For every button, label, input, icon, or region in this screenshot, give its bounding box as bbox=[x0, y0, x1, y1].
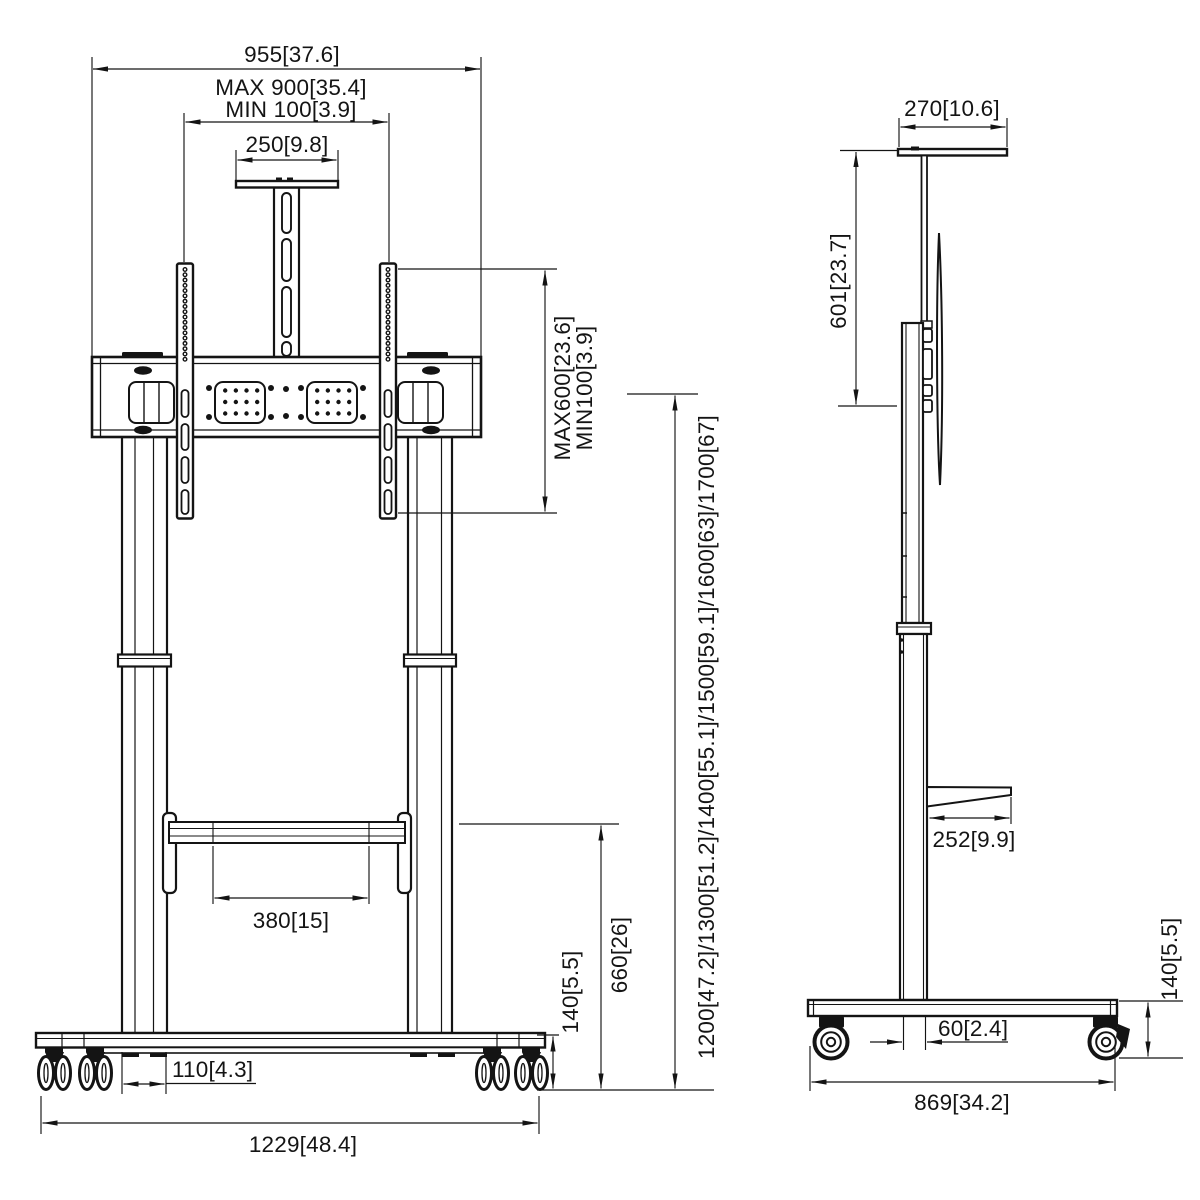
dim-caster-height-side: 140[5.5] bbox=[1157, 918, 1182, 1001]
dim-leg-width-at-base: 110[4.3] bbox=[172, 1057, 253, 1082]
casters-front bbox=[39, 1052, 548, 1090]
mount-hooks bbox=[923, 329, 932, 412]
base-front bbox=[36, 1033, 545, 1057]
inner-column-tube bbox=[922, 156, 928, 324]
top-shelf-side bbox=[898, 147, 1007, 156]
handle-left bbox=[129, 382, 174, 423]
dim-vesa-width-min: MIN 100[3.9] bbox=[225, 97, 356, 122]
display-panel-profile bbox=[937, 233, 942, 485]
vesa-rail-left bbox=[177, 264, 193, 519]
caster-wheel bbox=[516, 1052, 548, 1090]
dim-camera-shelf-width: 250[9.8] bbox=[246, 132, 329, 157]
dim-top-shelf-depth: 270[10.6] bbox=[904, 96, 1000, 121]
caster-wheel bbox=[80, 1052, 112, 1090]
shelf-side-profile bbox=[927, 787, 1011, 807]
dim-shelf-depth: 252[9.9] bbox=[933, 827, 1016, 852]
side-view-dimensions: 270[10.6] 601[23.7] 252[9.9] 60[2.4] 869… bbox=[810, 96, 1183, 1115]
bolt-plate-right bbox=[298, 382, 366, 423]
base-side bbox=[808, 1000, 1117, 1016]
technical-drawing-page: 955[37.6] MAX 900[35.4] MIN 100[3.9] 250… bbox=[0, 0, 1200, 1200]
bolt-plate-left bbox=[206, 382, 274, 423]
leg-right bbox=[404, 437, 456, 1033]
lift-column-side bbox=[897, 321, 932, 1000]
dim-column-depth: 60[2.4] bbox=[938, 1016, 1008, 1041]
equipment-shelf bbox=[163, 813, 411, 893]
caster-wheel bbox=[477, 1052, 509, 1090]
dim-shelf-height: 660[26] bbox=[607, 917, 632, 993]
dim-total-width: 955[37.6] bbox=[244, 42, 340, 67]
leg-left bbox=[118, 437, 171, 1033]
dim-caster-height-front: 140[5.5] bbox=[558, 951, 583, 1034]
dim-vesa-height-min: MIN100[3.9] bbox=[572, 326, 597, 451]
dim-base-width: 1229[48.4] bbox=[249, 1132, 357, 1157]
dim-base-depth: 869[34.2] bbox=[914, 1090, 1010, 1115]
dim-height-options: 1200[47.2]/1300[51.2]/1400[55.1]/1500[59… bbox=[694, 415, 719, 1059]
vesa-rail-right bbox=[380, 264, 396, 519]
dim-shelf-width: 380[15] bbox=[253, 908, 329, 933]
display-crossbar bbox=[92, 352, 481, 437]
caster-wheel bbox=[39, 1052, 71, 1090]
front-view bbox=[36, 178, 548, 1090]
handle-right bbox=[398, 382, 443, 423]
tv-cart-dimension-drawing: 955[37.6] MAX 900[35.4] MIN 100[3.9] 250… bbox=[0, 0, 1200, 1200]
dim-upper-column-height: 601[23.7] bbox=[826, 233, 851, 329]
camera-mount bbox=[236, 178, 338, 358]
